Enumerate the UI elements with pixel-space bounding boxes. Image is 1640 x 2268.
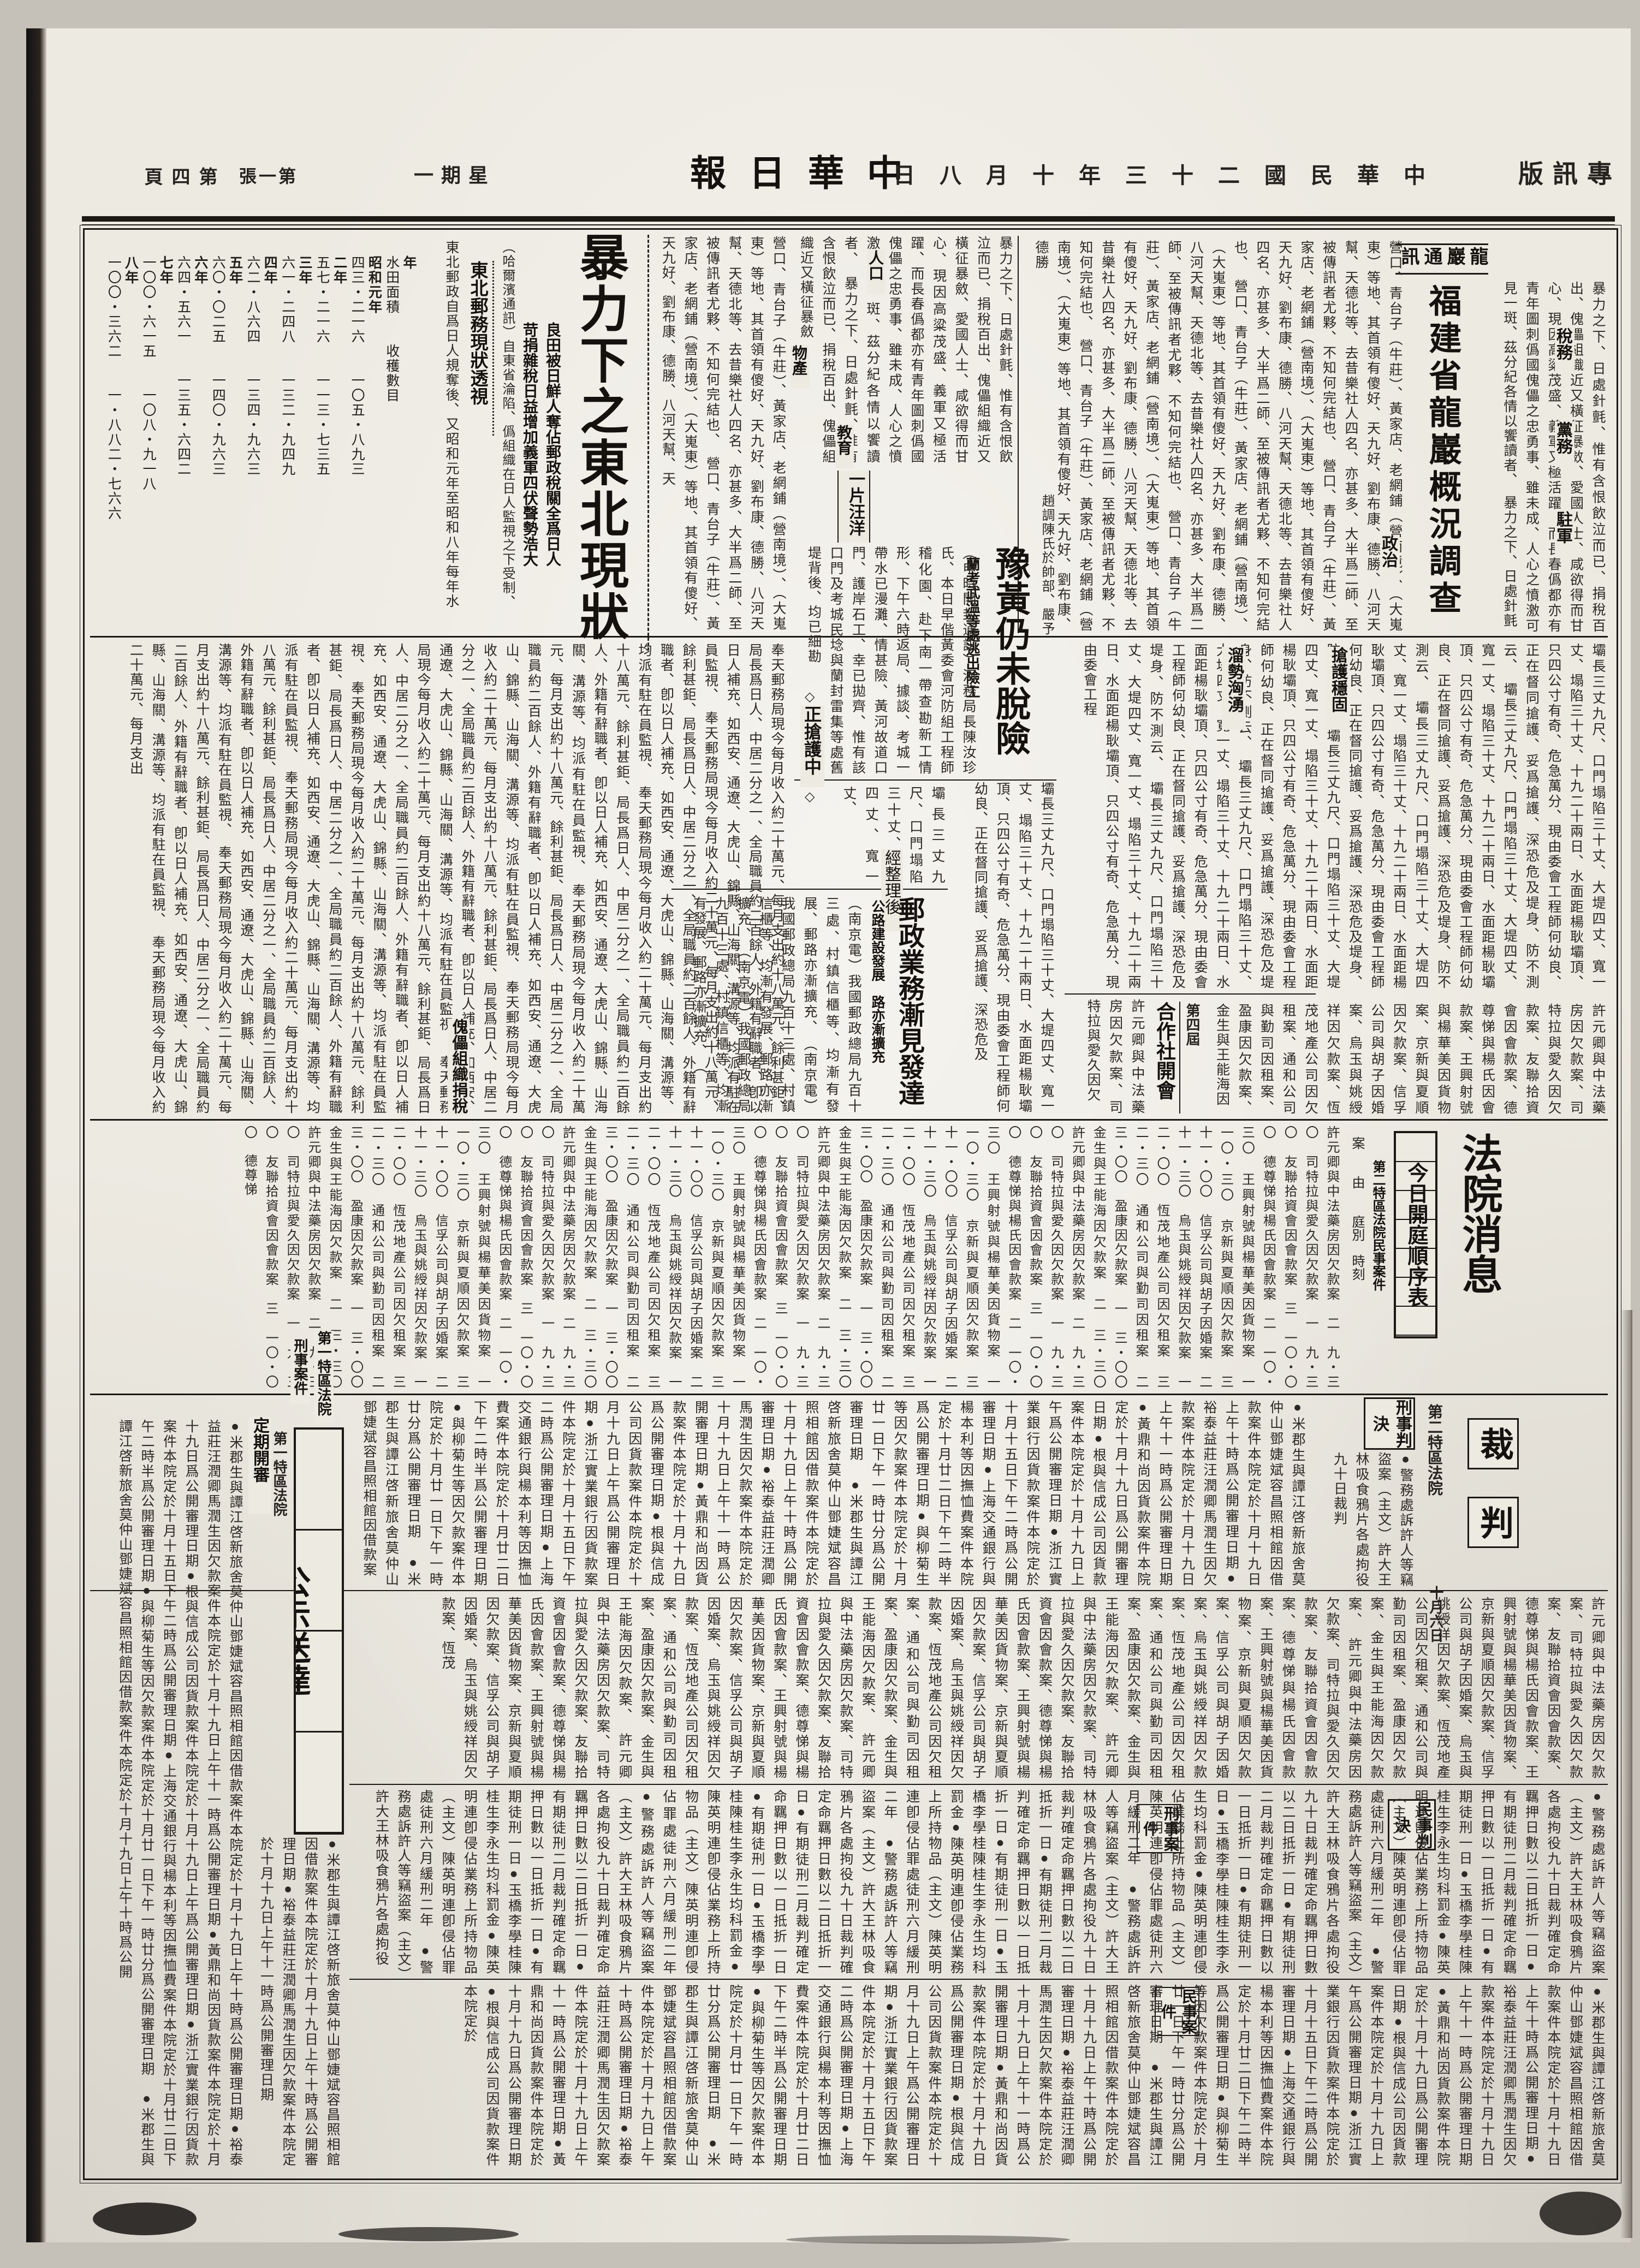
stats-table-row: 昭和元年四三・二一六 一〇五・八九三 [348,255,383,629]
dongbei-puppet-head: 傀儡組織捐稅 [448,1019,470,1116]
river-label-1: 搶護穩固 [1326,647,1350,730]
caipan-court: 第二特區法院 [1425,1404,1445,1573]
court-docket-boxhead: 今日開庭順序表 [1394,1131,1437,1338]
postal-body: （南京電）我國郵政總局九百十三處、村鎮信櫃等、均漸有發展、郵路亦漸擴充、 （南京… [674,896,864,1114]
stats-table-row: 四年六二・八六四 一三四・九六三 [244,255,278,629]
dongbei-body-right-upper: 暴力之下、日處針氈、惟有含恨飲泣而已、捐稅百出、傀儡組織近又橫征暴斂、愛國人士、… [793,236,1015,464]
court-col-headers: 案 由 庭別 時刻 [1348,1136,1365,1390]
gongshi-body-left: ●米郡生與譚江啓新旅舍莫仲山鄧婕斌容昌照相館因借款案件本院定於十月十九日上午十時… [92,1419,246,2167]
postal-rule [672,889,948,890]
edition-label: 專訊版 [1511,160,1615,190]
yuhuang-body-lower-right: 壩長三丈九尺、口門塌陷三十丈、大堤四丈、寬一丈、塌陷三十丈、十九二十兩日、水面距… [950,782,1057,1114]
caipan-box-criminal: 刑事判決 [1364,1397,1415,1450]
court-section-2: 刑事案件 [290,1338,310,1404]
notices-band-4: ●米郡生與譚江啓新旅舍莫仲山鄧婕斌容昌照相館因借款案件本院定於十月十九日上午十時… [349,1984,1608,2167]
coop-body-right: 許元卿與中法藥房因欠款案、司特拉與愛久因欠款案、友聯拾資會因會款案、德尊悌與楊氏… [1207,1003,1608,1115]
page-number: 第四頁 [138,167,219,190]
river-label-2: 溜勢洶湧 [1222,647,1246,730]
diamond-icon: ◇ [805,689,815,705]
dongbei-postal-intro: 東北郵政自爲日人規奪後、又昭和元年至昭和八年每年水 [421,240,462,630]
fujian-label-zhengzhi: 政治 [1380,535,1400,581]
scan-blob [338,2227,519,2241]
scan-blob [786,2235,1070,2244]
stats-table-row: 三年六一・二四八 一三二・九四九 [278,255,313,629]
band-rule-6 [349,1979,1608,1980]
header-rule-thick [82,216,1615,222]
diamond-icon: ◇ [805,789,815,805]
caipan-char-2: 判 [1467,1497,1519,1548]
coop-body: 許元卿與中法藥房因欠款案、司特拉與愛久因欠 [1065,999,1148,1115]
dongbei-body-lead: （哈爾濱通訊）自東省淪陷、僞組織在日人監視之下受制、 [496,240,518,630]
notices-band-2: 許元卿與中法藥房因欠款案、司特拉與愛久因欠款案、友聯拾資會因會款案、德尊悌與楊氏… [349,1597,1608,1779]
fujian-label-zhujun: 駐軍 [1555,511,1574,557]
coop-headline: 合作社開會 [1152,1002,1177,1115]
stats-table-header-col: 年水田面積 收穫數目 [383,255,418,629]
newspaper-page: { "header": { "edition": "專訊版", "date": … [0,0,1640,2268]
court-subtitle: 第二特區法院民事案件 [1368,1160,1387,1354]
scan-blob [93,2202,197,2235]
dongbei-body-right-lower: 營口、青台子（牛莊）、黃家店、老網鋪（營南境）、（大嵬東）等地、其首領有傻好、天… [652,236,789,631]
dongbei-label-renkou: 人口 [867,250,886,294]
coop-pre-label: 第四屆 [1183,1003,1202,1069]
postal-subtitle: 公路建設發展 路亦漸擴充 [868,900,886,1114]
coop-rule [1065,993,1316,995]
notices-band-3: ●警務處訴許人等竊盜案（主文）許大王林吸食鴉片各處拘役九十日裁判確定命羈押日數以… [349,1789,1608,1975]
yuhuang-rule [794,779,1056,781]
coop-vrule [1179,1002,1180,1114]
rescue-label: 正搶護中 [800,705,824,787]
fujian-body-left: 營口、青台子（牛莊）、黃家店、老網鋪（營南境）、（大嵬東）等地、其首領有傻好、天… [1020,240,1405,632]
scan-blob [1540,2192,1621,2235]
band-rule-5 [349,1784,1608,1785]
notices-band-1: ●米郡生與譚江啓新旅舍莫仲山鄧婕斌容昌照相館因借款案件本院定於十月十九日上午十時… [349,1400,1308,1587]
header-rule-thin [82,224,1615,225]
stats-table-row: 六年六四・五六一 一三五・六四二 [174,255,209,629]
gongshi-headline: 公示送達 [294,1427,344,1835]
fujian-body-right: 暴力之下、日處針氈、惟有含恨飲泣而已、捐稅百出、傀儡組織近又橫征暴斂、愛國人士、… [1489,281,1608,633]
stats-table-row: 二年五七・二一六 一一三・七三五 [313,255,348,629]
gongshi-body-below: ●米郡生與譚江啓新旅舍莫仲山鄧婕斌容昌照相館因借款案件本院定於十月十九日上午十時… [247,1837,343,2167]
dongbei-zigzag-divider [647,235,649,651]
dongbei-label-jiaoyu: 教育 [835,425,854,468]
stats-table-row: 五年六〇・〇二五 一四〇・九六三 [209,255,243,629]
fujian-wire-label: 龍巖通訊 [1395,247,1488,270]
flood-label: 一片汪洋 [837,471,870,543]
yuhuang-headline: 豫黃仍未脫險 [982,546,1039,778]
fujian-label-dangwu: 黨務 [1555,421,1574,467]
court-section-1: 第一特區法院 [314,1331,334,1424]
dongbei-subtitle-1: 良田被日鮮人奪佔郵政稅關全爲日人 [543,322,561,641]
sheet-number: 第一張 [236,167,296,190]
scan-left-strip [26,28,46,2242]
date-line: 中華民國二十三年十月八日 [874,164,1436,190]
dongbei-postal-head: 東北郵務現狀透視 [465,261,494,436]
dongbei-stats-table: 年水田面積 收穫數目昭和元年四三・二一六 一〇五・八九三二年五七・二一六 一一三… [105,255,417,629]
fujian-headline: 福建省龍巖概況調查 [1415,284,1470,625]
postal-headline: 郵政業務漸見發達 [889,896,928,1115]
court-docket-list: 許元卿與中法藥房因欠款案 二 九・三〇 司特拉與愛久因欠款案 一 九・三〇 友聯… [169,1126,1342,1389]
dongbei-label-wuchan: 物產 [791,345,809,389]
stats-table-row: 八年一〇〇・三六二 一・八八二・七六六 [105,255,139,629]
fujian-label-shuiwu: 稅務 [1555,328,1574,373]
gongshi-kicker: 定期開審 [248,1417,271,1514]
stats-table-row: 七年一〇〇・六一五 一〇八・九一八 [140,255,174,629]
caipan-body: ●警務處訴許人等竊盜案（主文）許大王林吸食鴉片各處拘役九十日裁判 [1314,1452,1416,1587]
court-headline: 法院消息 [1447,1133,1510,1370]
band-rule-2 [90,1119,1608,1121]
dongbei-subtitle-2: 苛捐雜稅日益增加義軍四伏聲勢浩大 [520,322,538,641]
gongshi-court: 第一特區法院 [271,1431,289,1595]
weekday: 星期一 [408,165,490,189]
wire-rule-bottom [1395,273,1488,275]
wire-rule-top [1395,243,1488,245]
caipan-char-1: 裁 [1467,1418,1519,1469]
dongbei-headline: 暴力下之東北現狀 [558,232,640,655]
